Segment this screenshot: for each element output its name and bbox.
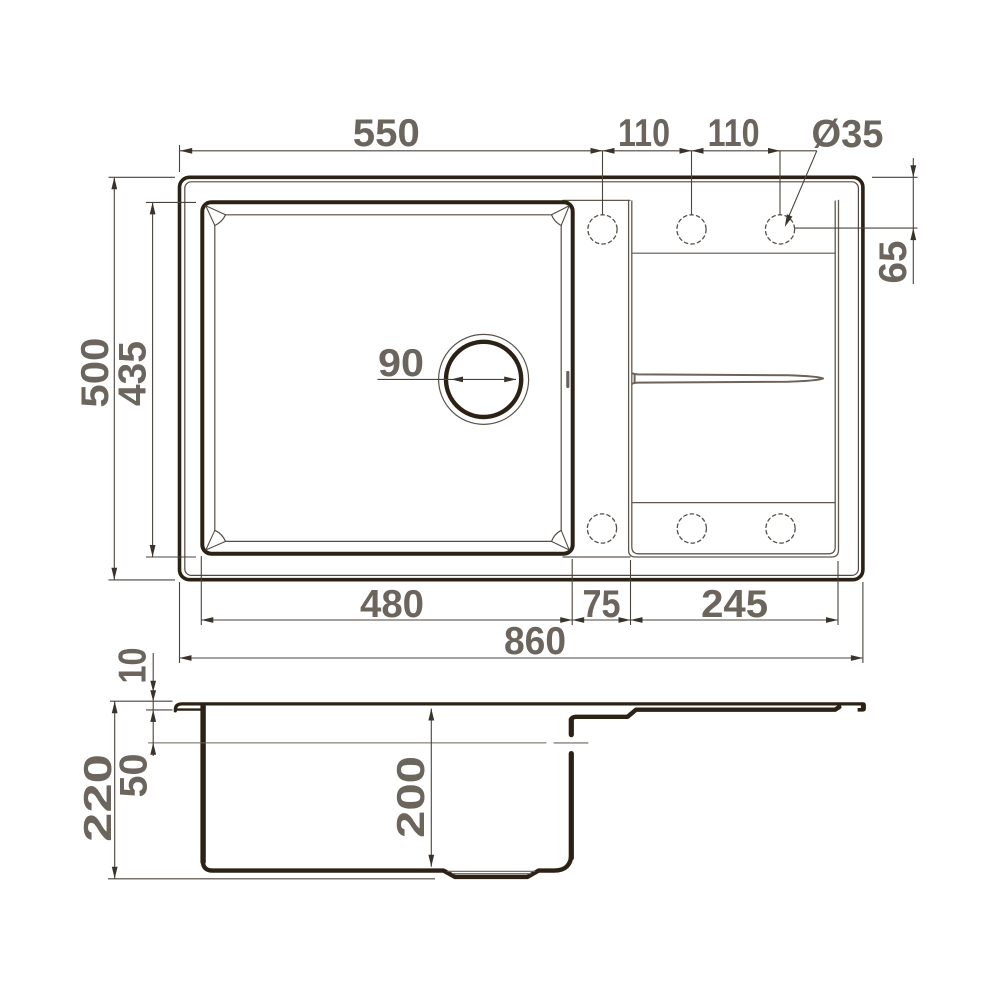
- svg-text:65: 65: [872, 241, 915, 284]
- svg-text:860: 860: [504, 620, 566, 663]
- svg-text:480: 480: [360, 583, 424, 626]
- svg-text:245: 245: [701, 583, 768, 626]
- svg-text:200: 200: [390, 756, 433, 838]
- svg-text:90: 90: [378, 342, 424, 385]
- svg-text:550: 550: [353, 112, 420, 155]
- svg-text:220: 220: [77, 754, 120, 842]
- svg-text:110: 110: [618, 112, 670, 155]
- svg-text:Ø35: Ø35: [812, 113, 884, 156]
- svg-text:75: 75: [583, 583, 621, 626]
- svg-text:110: 110: [708, 112, 760, 155]
- svg-text:435: 435: [111, 341, 154, 406]
- svg-text:10: 10: [112, 648, 155, 684]
